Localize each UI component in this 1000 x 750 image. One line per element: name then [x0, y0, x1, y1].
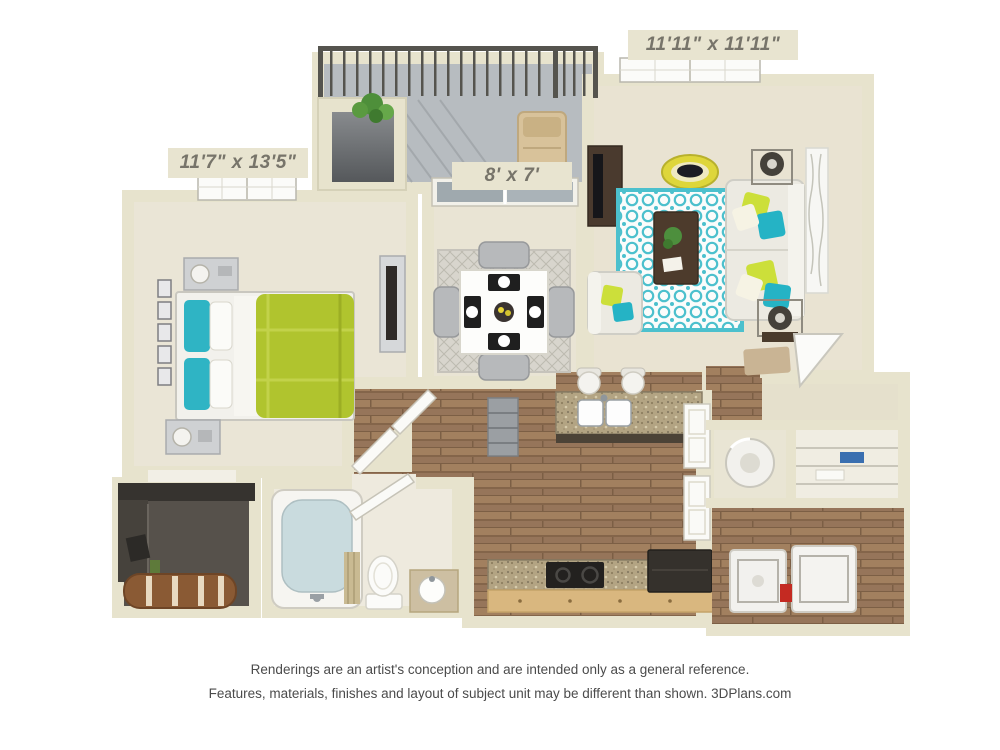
bedroom-dimensions-label: 11'7" x 13'5"	[168, 148, 308, 178]
water-heater	[714, 430, 786, 498]
bottom-counter	[488, 550, 714, 612]
armchair	[588, 272, 642, 334]
living-tv	[593, 154, 603, 218]
linen-shelves	[796, 430, 898, 498]
kitchen-sink	[606, 400, 631, 426]
pantry-cabinet	[488, 398, 518, 456]
patio-dimensions-label: 8' x 7'	[452, 162, 572, 190]
wall-art-frames	[158, 280, 171, 385]
dog-bed	[662, 155, 718, 189]
refrigerator	[648, 550, 712, 592]
dining-chair	[434, 287, 460, 337]
curtain-panel	[806, 148, 828, 293]
floorplan-page: 11'7" x 13'5" 8' x 7' 11'11" x 11'11" Re…	[0, 0, 1000, 750]
bedroom-tv	[386, 266, 397, 340]
dining-chair	[479, 354, 529, 380]
stove	[546, 562, 604, 588]
table-lamp	[191, 265, 209, 283]
table-lamp	[173, 428, 191, 446]
dining-chair	[479, 242, 529, 268]
closet-door-frame	[148, 470, 236, 482]
teal-pillow	[184, 300, 210, 352]
dresser-tv	[380, 256, 405, 352]
bathroom-sink	[410, 570, 458, 612]
living-window	[620, 58, 760, 82]
teal-throw-pillow	[756, 210, 786, 240]
detergent-bottle	[780, 584, 792, 602]
towel-rack	[344, 552, 360, 604]
dining-chair	[548, 287, 574, 337]
washer	[730, 550, 786, 612]
dryer	[792, 546, 856, 612]
floorplan-rendering	[0, 0, 1000, 750]
magazine	[662, 257, 683, 273]
living-room-dimensions-label: 11'11" x 11'11"	[628, 30, 798, 60]
disclaimer-line-2: Features, materials, finishes and layout…	[0, 686, 1000, 701]
breakfast-bar	[556, 392, 702, 443]
centerpiece-bowl	[494, 302, 514, 322]
entry-console-table	[762, 332, 798, 342]
sink-faucet	[601, 395, 608, 402]
teal-pillow	[184, 358, 210, 410]
coffee-table	[654, 212, 698, 284]
closet-bench	[124, 574, 236, 608]
teal-throw-pillow	[612, 302, 634, 323]
storage-box	[840, 452, 864, 463]
base-cabinets	[488, 590, 714, 612]
teal-throw-pillow	[762, 282, 791, 309]
bed	[176, 292, 354, 420]
sleeping-dog	[677, 165, 703, 178]
disclaimer-line-1: Renderings are an artist's conception an…	[0, 662, 1000, 677]
nightstand-bottom	[166, 420, 220, 454]
nightstand-top	[184, 258, 238, 290]
entry-doormat	[743, 346, 791, 375]
tub-faucet	[313, 594, 321, 602]
sink-faucet	[429, 576, 435, 582]
kitchen-sink	[578, 400, 603, 426]
